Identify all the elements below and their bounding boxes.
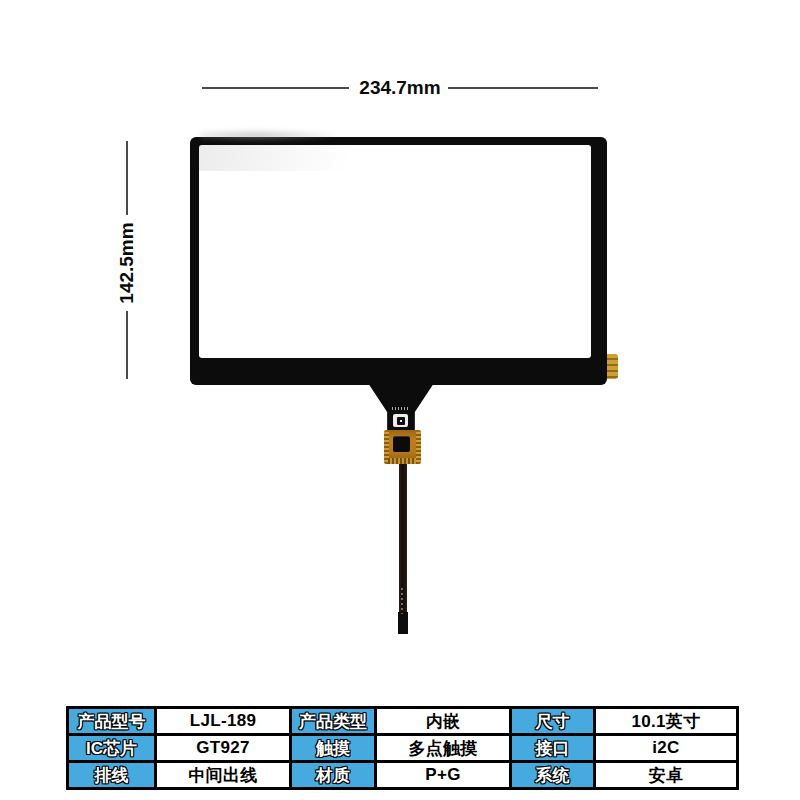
fpc-label-sticker xyxy=(393,414,408,427)
spec-value-cell: 内嵌 xyxy=(377,709,509,733)
dimension-width-line-left xyxy=(202,87,349,89)
cable-tip xyxy=(398,612,408,634)
fpc-print-marks xyxy=(392,407,410,410)
spec-value-cell: LJL-189 xyxy=(157,709,289,733)
spec-header-cell: 材质 xyxy=(292,763,374,787)
spec-header-cell: 尺寸 xyxy=(512,709,593,733)
spec-value-cell: P+G xyxy=(377,763,509,787)
spec-value-cell: i2C xyxy=(596,736,736,760)
touch-ic-chip xyxy=(393,436,410,452)
spec-header-cell: 排线 xyxy=(69,763,154,787)
dimension-width-label: 234.7mm xyxy=(359,77,440,99)
spec-header-cell: 触摸 xyxy=(292,736,374,760)
spec-header-cell: 系统 xyxy=(512,763,593,787)
dimension-width-line-right xyxy=(448,87,598,89)
cable-print-marks xyxy=(401,588,403,614)
spec-header-cell: IC芯片 xyxy=(69,736,154,760)
spec-value-cell: 多点触摸 xyxy=(377,736,509,760)
fpc-gold-fingers xyxy=(388,458,417,464)
touch-panel-frame xyxy=(190,137,607,385)
touch-panel-screen xyxy=(199,145,591,358)
spec-value-cell: 安卓 xyxy=(596,763,736,787)
spec-header-cell: 产品类型 xyxy=(292,709,374,733)
spec-value-cell: 中间出线 xyxy=(157,763,289,787)
fpc-connector xyxy=(384,430,421,464)
spec-table: 产品型号 LJL-189 产品类型 内嵌 尺寸 10.1英寸 IC芯片 GT92… xyxy=(66,706,739,790)
screen-reflection xyxy=(199,145,415,171)
spec-header-cell: 接口 xyxy=(512,736,593,760)
dimension-height-line-top xyxy=(126,141,128,215)
frame-reflection-smudge xyxy=(200,129,340,142)
fpc-sticker-glyph xyxy=(397,417,405,425)
dimension-height-line-bottom xyxy=(126,311,128,379)
spec-value-cell: GT927 xyxy=(157,736,289,760)
dimension-height-label: 142.5mm xyxy=(116,222,138,303)
spec-header-cell: 产品型号 xyxy=(69,709,154,733)
spec-value-cell: 10.1英寸 xyxy=(596,709,736,733)
